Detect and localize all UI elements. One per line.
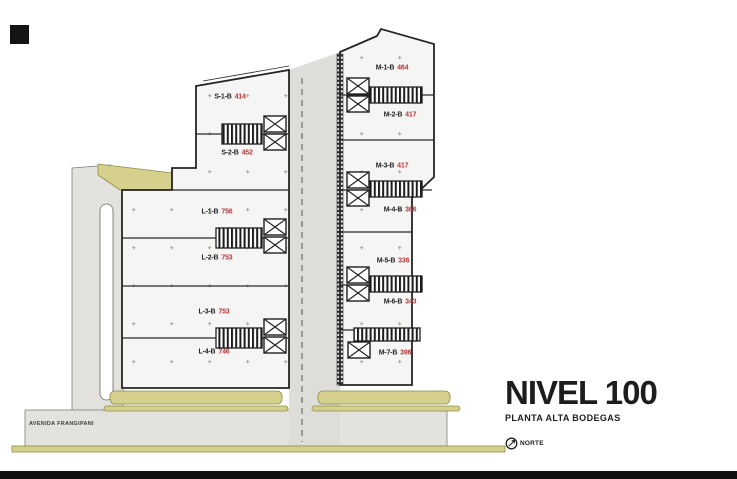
street-bottom bbox=[25, 410, 447, 446]
north-compass-icon bbox=[505, 437, 518, 450]
sidewalk-right-band bbox=[318, 391, 450, 404]
sidewalk-left-band bbox=[110, 391, 282, 404]
sidewalk-left-curb bbox=[104, 406, 288, 411]
title-block: NIVEL 100 PLANTA ALTA BODEGAS NORTE bbox=[505, 376, 657, 450]
page-title: NIVEL 100 bbox=[505, 376, 657, 411]
floor-plan-page: S-1-B414S-2-B452L-1-B756L-2-B753L-3-B753… bbox=[0, 0, 737, 479]
footer-bar bbox=[0, 471, 737, 479]
corner-marker bbox=[10, 25, 29, 44]
street-name-label: AVENIDA FRANGIPANI bbox=[29, 421, 94, 427]
page-subtitle: PLANTA ALTA BODEGAS bbox=[505, 413, 657, 423]
party-wall-hatch bbox=[337, 54, 343, 385]
central-driveway bbox=[289, 52, 340, 446]
north-label: NORTE bbox=[520, 440, 544, 447]
north-indicator: NORTE bbox=[505, 437, 657, 450]
sidewalk-far-band bbox=[12, 446, 505, 452]
road-median-island bbox=[100, 204, 113, 400]
sidewalk-right-curb bbox=[312, 406, 460, 411]
avenue-vertical bbox=[72, 165, 123, 414]
